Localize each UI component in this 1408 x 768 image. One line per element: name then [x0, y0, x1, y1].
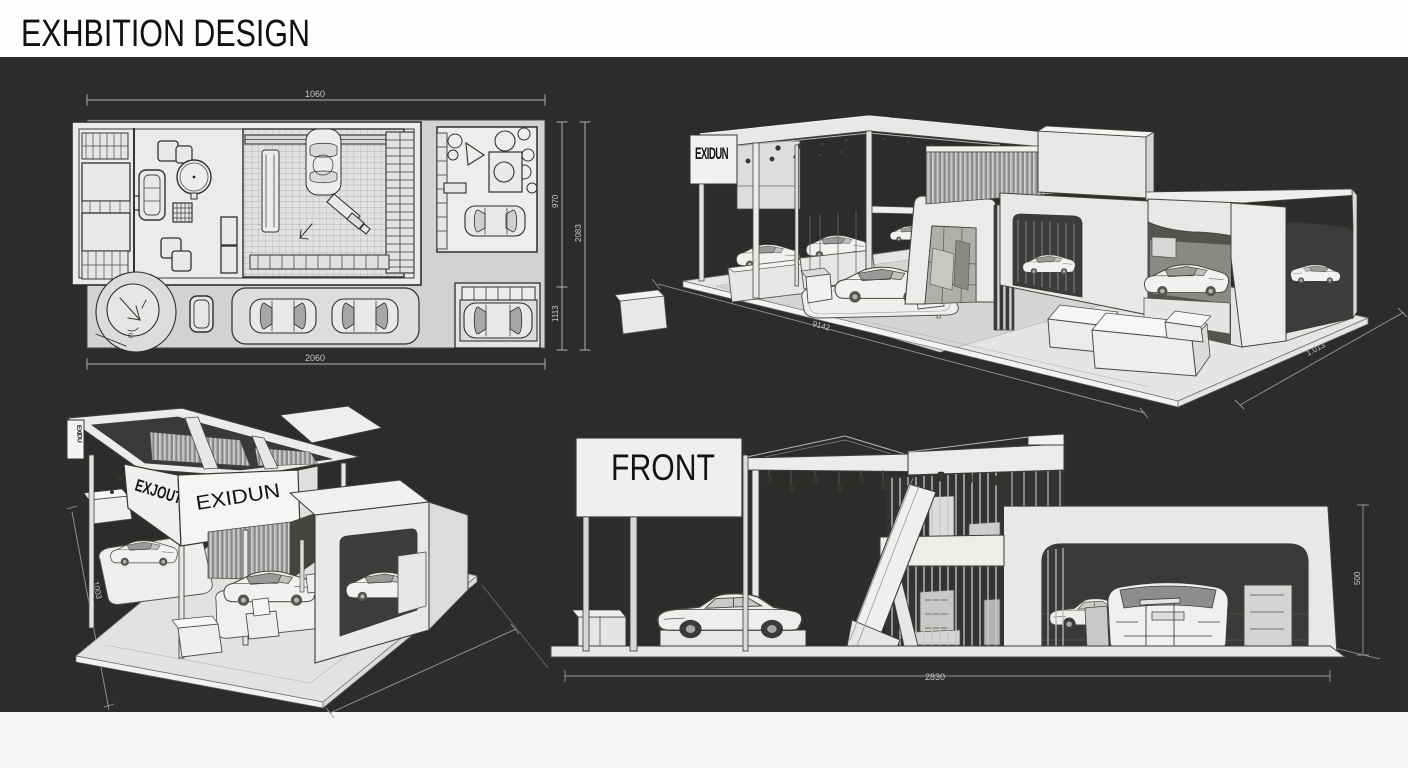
- svg-text:G: G: [128, 333, 133, 340]
- svg-text:EXIDU: EXIDU: [75, 425, 83, 443]
- svg-text:2830: 2830: [925, 672, 945, 682]
- svg-text:FRONT: FRONT: [611, 447, 715, 488]
- svg-text:2083: 2083: [574, 224, 583, 242]
- svg-text:1113: 1113: [551, 305, 560, 322]
- svg-text:EXIDUN: EXIDUN: [695, 144, 728, 163]
- svg-text:EXHBITION DESIGN: EXHBITION DESIGN: [21, 13, 310, 55]
- svg-text:970: 970: [551, 194, 560, 208]
- svg-text:2060: 2060: [305, 353, 325, 363]
- svg-text:1060: 1060: [305, 89, 325, 99]
- svg-text:500: 500: [1353, 571, 1362, 585]
